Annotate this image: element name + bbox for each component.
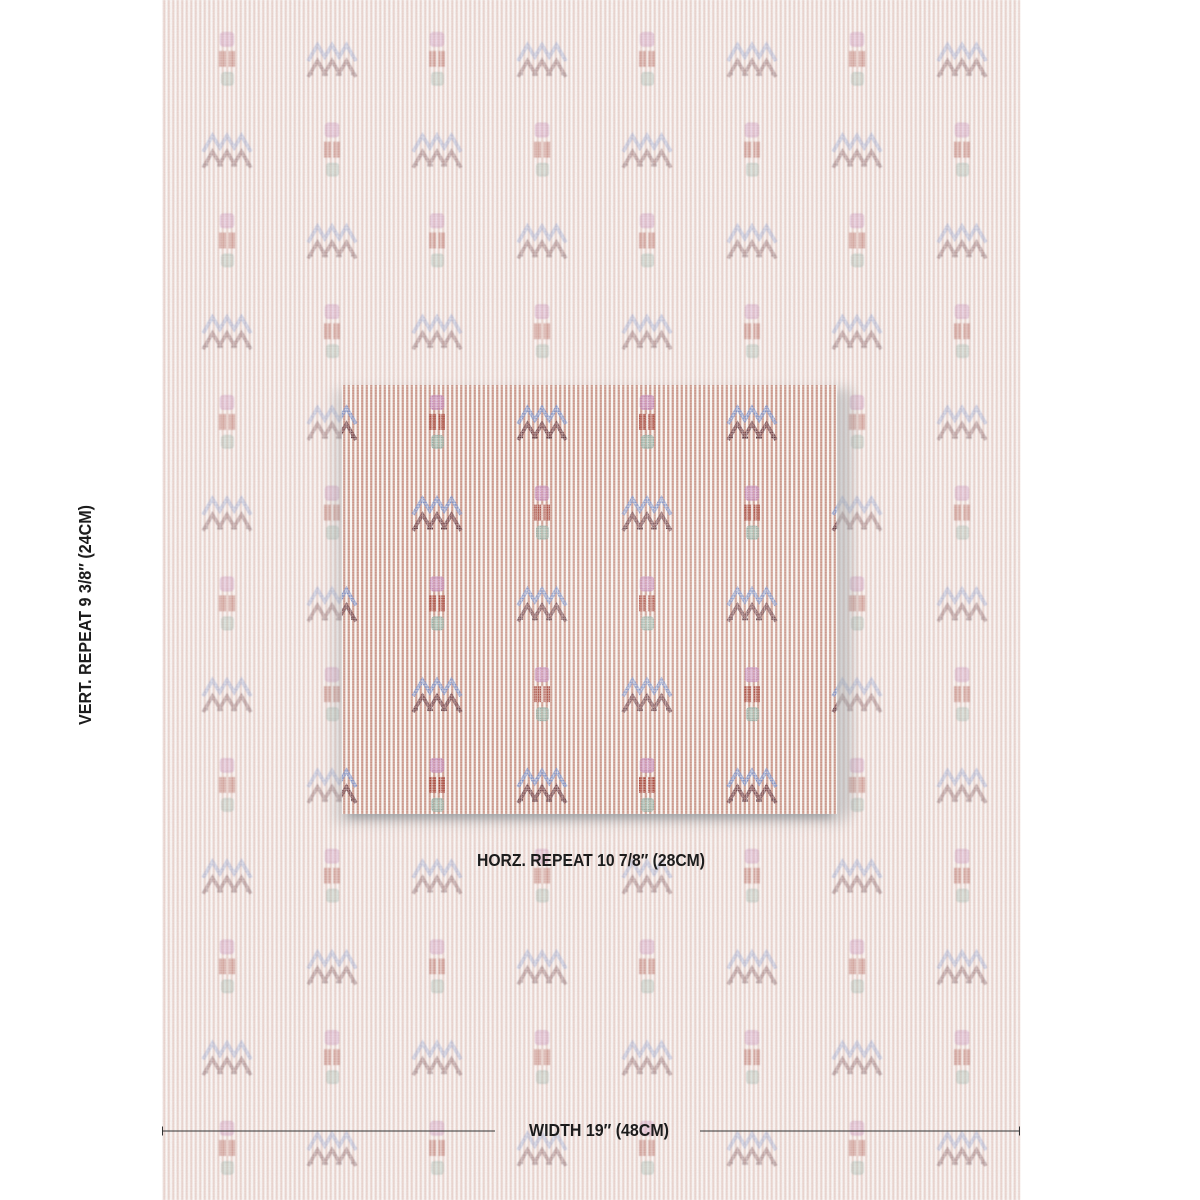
svg-text:HORZ. REPEAT 10 7/8″ (28CM): HORZ. REPEAT 10 7/8″ (28CM) [477,850,705,870]
svg-text:VERT. REPEAT 9 3/8″ (24CM): VERT. REPEAT 9 3/8″ (24CM) [75,505,95,725]
svg-text:WIDTH 19″ (48CM): WIDTH 19″ (48CM) [529,1120,669,1140]
